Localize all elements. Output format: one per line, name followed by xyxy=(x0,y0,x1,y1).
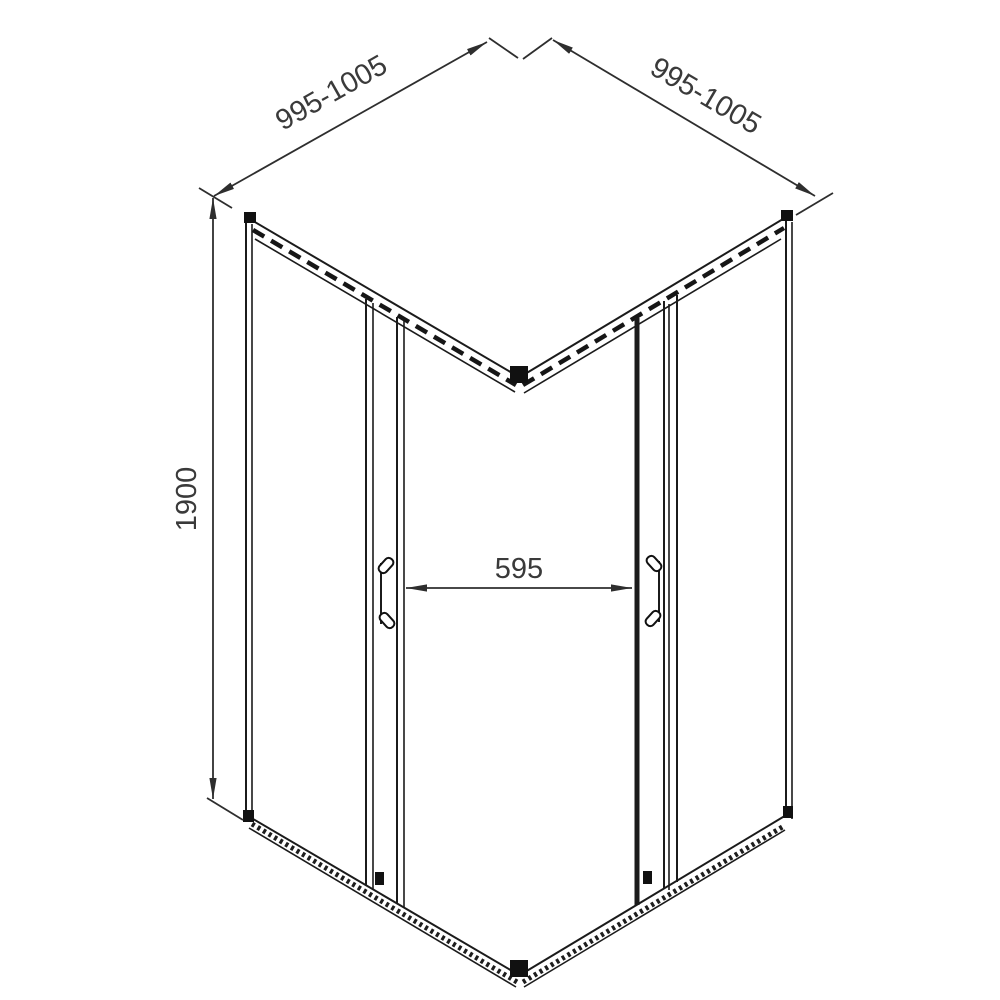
right-handle-top-mount xyxy=(645,554,663,573)
right-width-dimension-line xyxy=(553,40,815,196)
left-wall xyxy=(246,218,519,987)
left-door-bottom-guide xyxy=(375,872,384,885)
front-top-corner-block xyxy=(510,366,528,383)
right-top-rail-track xyxy=(523,228,784,385)
left-width-witness-apex xyxy=(489,38,518,58)
right-top-corner-block xyxy=(781,210,793,221)
left-bottom-rail-track xyxy=(252,824,517,982)
right-width-label: 995-1005 xyxy=(645,51,767,141)
left-width-label: 995-1005 xyxy=(270,49,392,137)
left-top-corner-block xyxy=(244,212,256,223)
entry-width-dimension: 595 xyxy=(406,553,632,588)
right-bottom-rail-track xyxy=(523,826,784,982)
right-bottom-corner-block xyxy=(783,806,793,818)
left-handle-top-mount xyxy=(377,556,395,575)
left-top-rail-track xyxy=(253,230,516,385)
right-width-dimension: 995-1005 xyxy=(523,38,833,215)
right-top-rail xyxy=(520,216,788,393)
right-width-witness-apex xyxy=(523,38,552,59)
height-dimension: 1900 xyxy=(171,198,243,820)
right-handle-bottom-mount xyxy=(644,609,662,628)
left-width-witness-left xyxy=(199,188,232,208)
entry-width-label: 595 xyxy=(495,553,543,585)
left-door-handle xyxy=(377,556,396,630)
left-top-rail xyxy=(248,218,519,392)
left-bottom-corner-block xyxy=(243,810,254,822)
right-door-handle xyxy=(644,554,663,628)
right-bottom-rail xyxy=(520,814,788,987)
left-bottom-rail xyxy=(248,816,519,987)
drawing-canvas: 995-1005 995-1005 1900 595 xyxy=(0,0,1000,1000)
right-door-bottom-guide xyxy=(643,871,652,884)
right-wall xyxy=(520,216,792,987)
height-witness-bottom xyxy=(207,798,243,820)
front-bottom-corner-block xyxy=(510,960,528,977)
height-label: 1900 xyxy=(171,467,203,532)
left-width-dimension: 995-1005 xyxy=(199,38,518,208)
left-handle-bottom-mount xyxy=(378,611,396,630)
shower-enclosure-technical-drawing: 995-1005 995-1005 1900 595 xyxy=(0,0,1000,1000)
